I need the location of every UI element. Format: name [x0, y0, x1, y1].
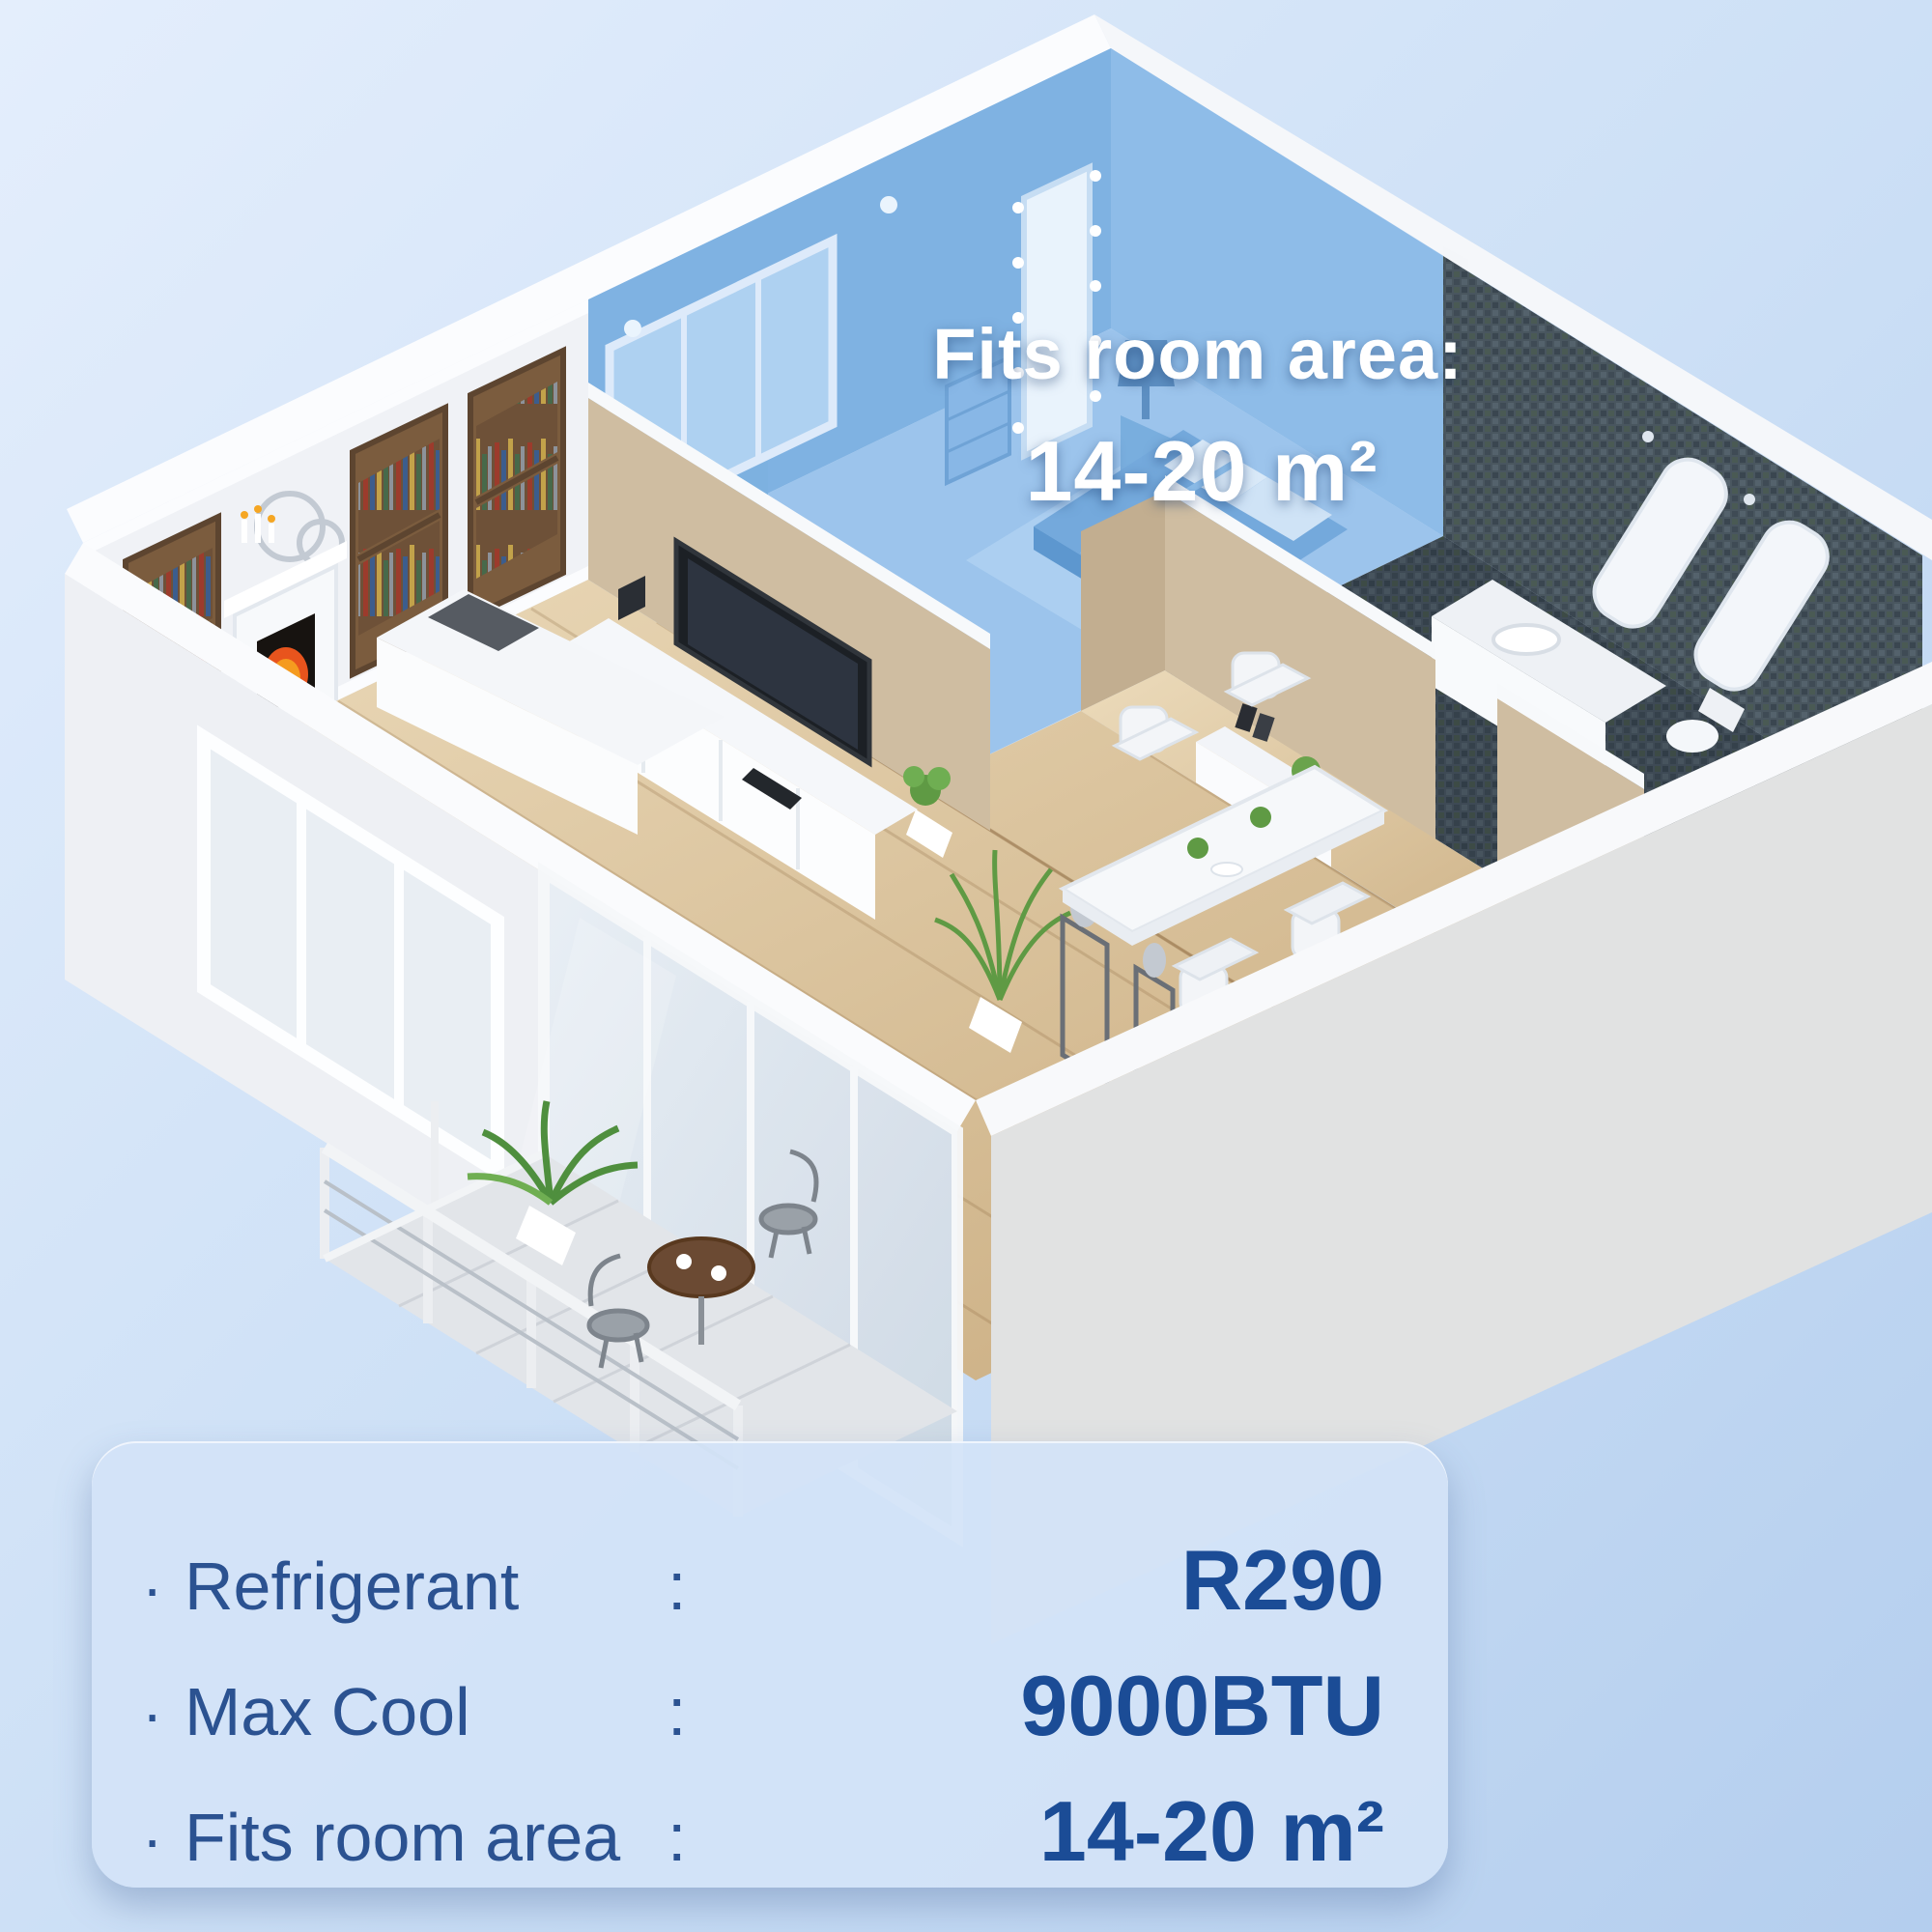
spec-value: 9000BTU — [710, 1660, 1384, 1752]
spec-label: Fits room area — [185, 1791, 668, 1884]
spec-label: Refrigerant — [185, 1540, 668, 1633]
spec-value: R290 — [710, 1534, 1384, 1627]
vanity-mirror — [1012, 167, 1101, 456]
wall-sconce — [880, 196, 897, 213]
product-infographic: Fits room area: 14-20 m² · Refrigerant :… — [0, 0, 1932, 1932]
overlay-value: 14-20 m² — [1025, 423, 1378, 519]
spec-label: Max Cool — [185, 1665, 668, 1758]
spec-row-refrigerant: · Refrigerant : R290 — [142, 1534, 1384, 1627]
candle — [255, 514, 261, 543]
overlay-title: Fits room area: — [932, 314, 1463, 394]
spec-value: 14-20 m² — [710, 1785, 1384, 1878]
centerpiece — [1187, 838, 1208, 859]
bullet: · — [142, 1542, 185, 1634]
specs-panel: · Refrigerant : R290 · Max Cool : 9000BT… — [92, 1441, 1448, 1888]
colon: : — [668, 1540, 710, 1633]
candle — [241, 520, 247, 543]
colon: : — [668, 1791, 710, 1884]
bullet: · — [142, 1793, 185, 1886]
spec-row-fits-room-area: · Fits room area : 14-20 m² — [142, 1785, 1384, 1878]
spec-row-max-cool: · Max Cool : 9000BTU — [142, 1660, 1384, 1752]
wall-sconce — [624, 320, 641, 337]
bullet: · — [142, 1667, 185, 1760]
candle — [269, 524, 274, 543]
bookcase — [470, 351, 563, 617]
centerpiece — [1250, 807, 1271, 828]
colon: : — [668, 1665, 710, 1758]
